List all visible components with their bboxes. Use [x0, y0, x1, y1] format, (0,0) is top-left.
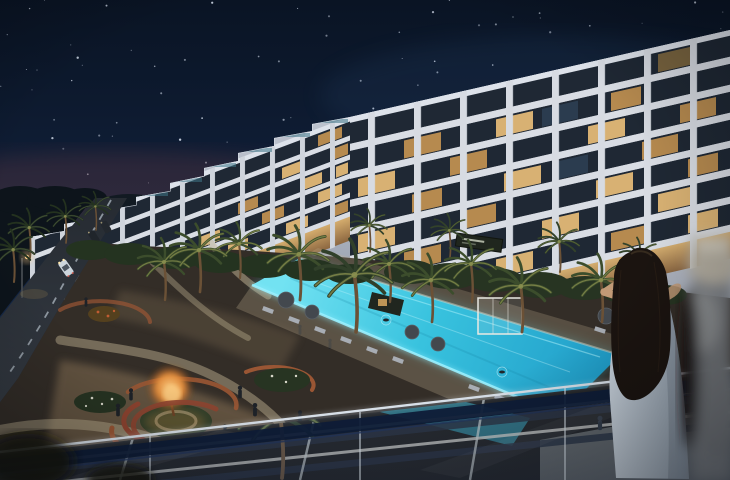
scene-canvas: [0, 0, 730, 480]
night-rendering-scene: [0, 0, 730, 480]
vignette: [0, 0, 730, 480]
